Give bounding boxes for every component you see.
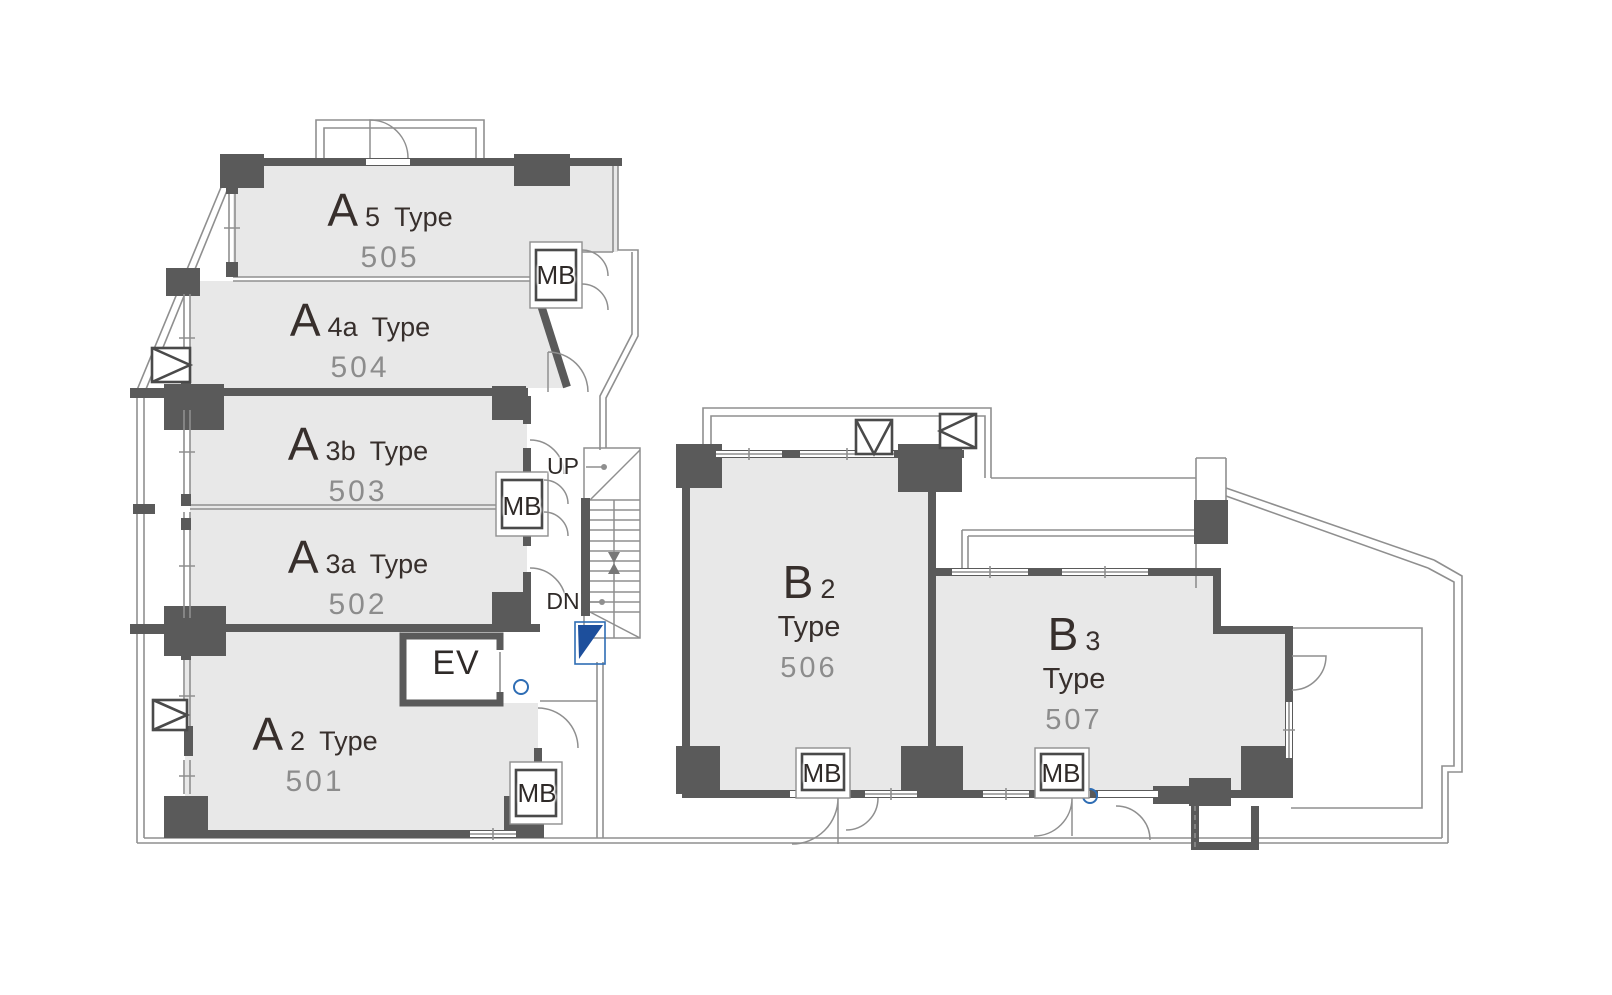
- stairs-up-label: UP: [540, 454, 586, 478]
- unit-name-507: B3: [995, 610, 1153, 658]
- unit-name-502: A3aType: [218, 533, 498, 581]
- mailbox-label-505: MB: [530, 262, 582, 289]
- elevator-label: EV: [426, 646, 486, 682]
- unit-name-501: A2Type: [175, 710, 455, 758]
- unit-label-501: A2Type 501: [175, 710, 455, 798]
- unit-number-503: 503: [218, 476, 498, 508]
- pipe-shaft-icon: [940, 414, 976, 448]
- stairs-down-label: DN: [540, 589, 586, 613]
- unit-number-502: 502: [218, 589, 498, 621]
- unit-label-507: B3 Type 507: [995, 610, 1153, 735]
- mailbox-label-507: MB: [1035, 760, 1087, 787]
- unit-label-503: A3bType 503: [218, 420, 498, 508]
- unit-number-506: 506: [730, 653, 888, 683]
- mailbox-label-501: MB: [511, 780, 563, 807]
- blue-dot-hall: [514, 680, 528, 694]
- unit-label-505: A5Type 505: [250, 186, 530, 274]
- mailbox-label-503: MB: [496, 493, 548, 520]
- unit-type-506: Type: [730, 612, 888, 642]
- unit-type-507: Type: [995, 664, 1153, 694]
- unit-name-503: A3bType: [218, 420, 498, 468]
- pipe-shaft-icon: [152, 348, 190, 382]
- unit-name-504: A4aType: [220, 296, 500, 344]
- unit-number-504: 504: [220, 352, 500, 384]
- unit-number-507: 507: [995, 705, 1153, 735]
- unit-number-505: 505: [250, 242, 530, 274]
- unit-number-501: 501: [175, 766, 455, 798]
- unit-label-504: A4aType 504: [220, 296, 500, 384]
- mailbox-label-506: MB: [796, 760, 848, 787]
- staircase: [581, 448, 640, 638]
- unit-label-502: A3aType 502: [218, 533, 498, 621]
- entrance-marker: [575, 622, 605, 664]
- unit-name-505: A5Type: [250, 186, 530, 234]
- pipe-shaft-icon: [856, 420, 892, 454]
- floor-plan: A5Type 505 A4aType 504 A3bType 503 A3aTy…: [0, 0, 1612, 995]
- unit-label-506: B2 Type 506: [730, 558, 888, 683]
- unit-name-506: B2: [730, 558, 888, 606]
